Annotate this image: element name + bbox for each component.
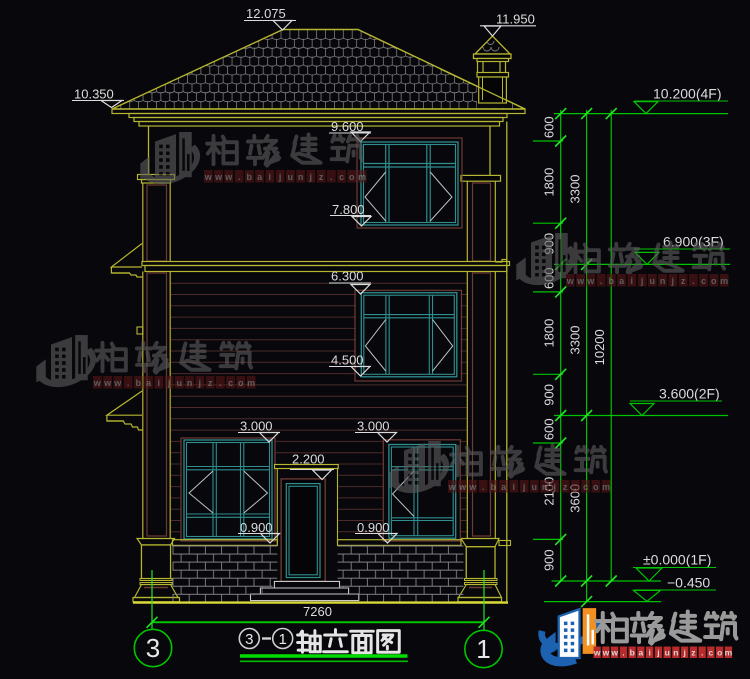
svg-text:1800: 1800 — [542, 319, 557, 348]
svg-text:600: 600 — [542, 418, 557, 440]
svg-text:w: w — [576, 276, 585, 286]
svg-text:−0.450: −0.450 — [667, 575, 710, 591]
svg-text:.: . — [600, 276, 603, 286]
svg-text:600: 600 — [542, 116, 557, 138]
svg-text:j: j — [167, 378, 171, 388]
svg-text:o: o — [238, 378, 244, 388]
svg-text:n: n — [673, 648, 678, 658]
svg-text:m: m — [602, 482, 610, 492]
svg-text:7.800: 7.800 — [332, 202, 365, 217]
svg-text:n: n — [660, 276, 666, 286]
svg-text:o: o — [717, 648, 722, 658]
svg-text:z: z — [208, 378, 213, 388]
svg-text:j: j — [309, 172, 313, 182]
svg-text:3: 3 — [245, 631, 253, 648]
svg-text:j: j — [278, 172, 282, 182]
svg-text:j: j — [671, 276, 675, 286]
svg-text:w: w — [468, 482, 477, 492]
svg-text:3.000: 3.000 — [240, 419, 273, 434]
svg-text:±0.000(1F): ±0.000(1F) — [643, 552, 711, 568]
svg-text:w: w — [93, 378, 102, 388]
svg-text:w: w — [602, 648, 610, 658]
svg-text:0.900: 0.900 — [240, 520, 273, 535]
svg-text:c: c — [228, 378, 233, 388]
svg-text:.: . — [330, 172, 333, 182]
svg-text:3.000: 3.000 — [357, 419, 390, 434]
svg-text:w: w — [586, 276, 595, 286]
svg-text:o: o — [593, 482, 599, 492]
svg-text:w: w — [103, 378, 112, 388]
svg-text:.: . — [701, 648, 703, 658]
svg-text:900: 900 — [542, 384, 557, 406]
svg-text:.: . — [692, 276, 695, 286]
svg-text:2.200: 2.200 — [292, 452, 325, 467]
svg-text:4.500: 4.500 — [331, 353, 364, 368]
svg-text:.: . — [574, 482, 577, 492]
svg-text:i: i — [513, 482, 516, 492]
svg-text:7260: 7260 — [303, 604, 332, 619]
svg-text:.: . — [127, 378, 130, 388]
svg-text:m: m — [247, 378, 255, 388]
svg-text:10.200(4F): 10.200(4F) — [653, 86, 721, 102]
svg-text:i: i — [158, 378, 161, 388]
svg-text:.: . — [219, 378, 222, 388]
svg-text:w: w — [204, 172, 213, 182]
svg-text:u: u — [177, 378, 183, 388]
svg-text:.: . — [622, 648, 624, 658]
svg-text:i: i — [631, 276, 634, 286]
svg-text:z: z — [563, 482, 568, 492]
svg-text:o: o — [349, 172, 355, 182]
svg-text:0.900: 0.900 — [357, 520, 390, 535]
svg-text:b: b — [247, 172, 253, 182]
svg-text:3300: 3300 — [568, 326, 583, 355]
svg-text:m: m — [725, 648, 733, 658]
svg-text:j: j — [656, 648, 659, 658]
svg-text:u: u — [532, 482, 538, 492]
svg-text:900: 900 — [542, 549, 557, 571]
svg-text:b: b — [609, 276, 615, 286]
svg-text:w: w — [214, 172, 223, 182]
svg-text:w: w — [224, 172, 233, 182]
svg-text:a: a — [639, 648, 644, 658]
svg-text:w: w — [448, 482, 457, 492]
svg-text:b: b — [630, 648, 635, 658]
svg-text:3: 3 — [146, 633, 160, 663]
svg-text:b: b — [491, 482, 497, 492]
svg-text:o: o — [711, 276, 717, 286]
svg-text:z: z — [681, 276, 686, 286]
svg-text:n: n — [187, 378, 193, 388]
svg-text:w: w — [566, 276, 575, 286]
svg-text:m: m — [720, 276, 728, 286]
svg-text:10200: 10200 — [592, 329, 607, 365]
svg-text:j: j — [683, 648, 686, 658]
svg-text:3300: 3300 — [568, 175, 583, 204]
svg-text:3.600(2F): 3.600(2F) — [659, 386, 720, 402]
svg-text:i: i — [269, 172, 272, 182]
svg-text:j: j — [522, 482, 526, 492]
svg-text:m: m — [358, 172, 366, 182]
svg-text:u: u — [288, 172, 294, 182]
svg-text:1: 1 — [476, 634, 490, 664]
svg-text:c: c — [339, 172, 344, 182]
svg-text:u: u — [650, 276, 656, 286]
svg-text:c: c — [709, 648, 714, 658]
svg-text:i: i — [649, 648, 651, 658]
svg-text:10.350: 10.350 — [74, 87, 114, 102]
svg-text:z: z — [691, 648, 695, 658]
svg-text:u: u — [665, 648, 670, 658]
svg-text:j: j — [553, 482, 557, 492]
svg-text:n: n — [542, 482, 548, 492]
svg-text:w: w — [113, 378, 122, 388]
svg-text:j: j — [198, 378, 202, 388]
svg-text:w: w — [458, 482, 467, 492]
svg-text:6.300: 6.300 — [331, 269, 364, 284]
svg-text:12.075: 12.075 — [246, 6, 286, 21]
svg-text:.: . — [482, 482, 485, 492]
svg-text:.: . — [238, 172, 241, 182]
svg-text:n: n — [298, 172, 304, 182]
svg-text:11.950: 11.950 — [496, 12, 535, 27]
svg-text:w: w — [593, 648, 601, 658]
svg-text:c: c — [583, 482, 588, 492]
svg-text:c: c — [701, 276, 706, 286]
svg-text:1: 1 — [279, 631, 287, 648]
svg-text:w: w — [610, 648, 618, 658]
svg-text:1800: 1800 — [542, 168, 557, 197]
svg-text:z: z — [319, 172, 324, 182]
svg-text:j: j — [640, 276, 644, 286]
svg-text:b: b — [136, 378, 142, 388]
